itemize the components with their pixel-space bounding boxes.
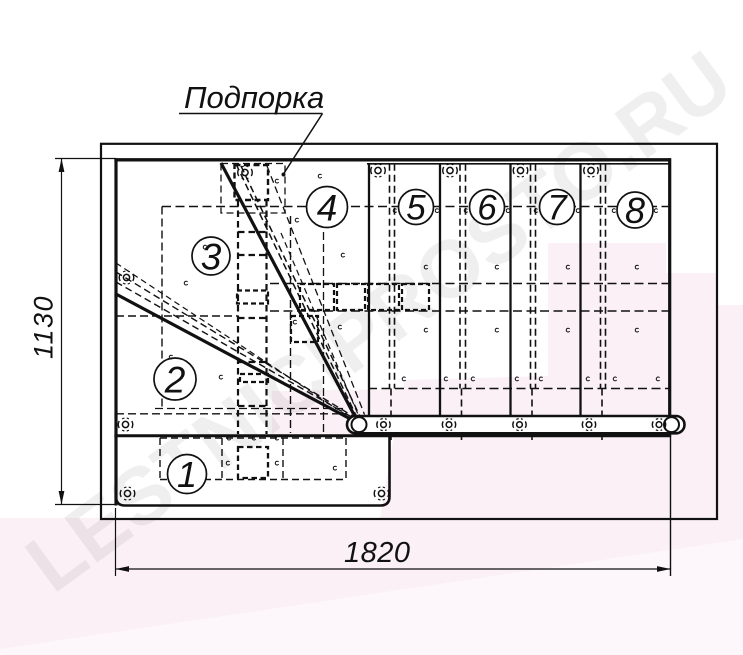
svg-text:5: 5 xyxy=(406,189,426,228)
svg-text:1: 1 xyxy=(177,454,197,495)
svg-text:7: 7 xyxy=(547,189,568,228)
svg-text:4: 4 xyxy=(317,187,338,228)
svg-text:2: 2 xyxy=(164,359,186,400)
svg-text:3: 3 xyxy=(201,236,222,277)
svg-text:8: 8 xyxy=(625,190,645,231)
svg-text:1820: 1820 xyxy=(344,537,411,569)
svg-text:6: 6 xyxy=(477,189,497,228)
svg-text:Подпорка: Подпорка xyxy=(184,80,324,115)
svg-text:1130: 1130 xyxy=(29,295,59,359)
